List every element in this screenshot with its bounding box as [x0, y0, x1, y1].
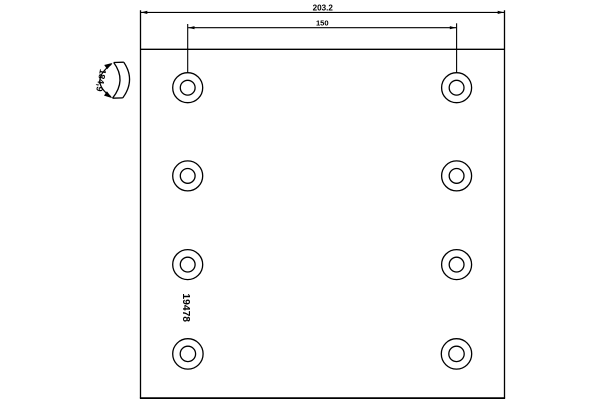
svg-text:150: 150 [316, 19, 329, 28]
svg-text:19478: 19478 [180, 293, 191, 322]
svg-text:203.2: 203.2 [313, 4, 334, 13]
